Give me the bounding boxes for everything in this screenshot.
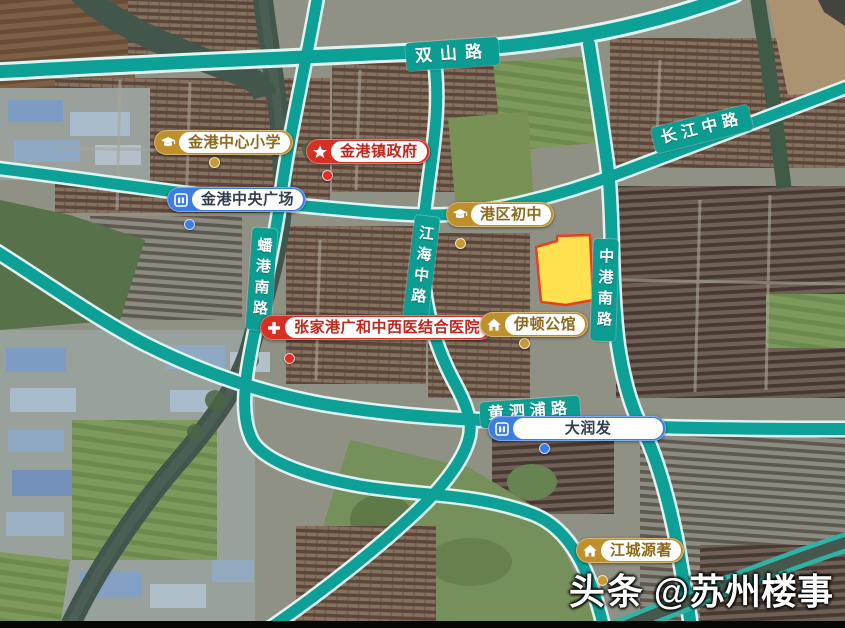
poi-pointer-dot <box>284 353 295 364</box>
poi-pointer-dot <box>539 443 550 454</box>
poi-label: 伊顿公馆 <box>505 314 585 335</box>
poi-pointer-dot <box>184 219 195 230</box>
poi-label: 张家港广和中西医结合医院 <box>285 317 489 338</box>
poi-rt-mart[interactable]: 大润发 <box>488 416 666 441</box>
poi-label: 金港中央广场 <box>192 189 303 210</box>
watermark-brand: 头条 <box>569 563 645 615</box>
poi-label: 金港中心小学 <box>179 132 290 153</box>
poi-zhangjiagang-guanghe-integrated-hospital[interactable]: 张家港广和中西医结合医院 <box>260 315 492 340</box>
poi-jingang-central-primary-school[interactable]: 金港中心小学 <box>154 130 293 155</box>
poi-jingang-central-plaza[interactable]: 金港中央广场 <box>167 187 306 212</box>
watermark: 头条 @苏州楼事 <box>569 563 833 615</box>
graduation-cap-icon <box>156 131 179 154</box>
poi-jingang-town-government[interactable]: 金港镇政府 <box>306 139 430 164</box>
road-label-zhonggang-south: 中港南路 <box>590 239 619 342</box>
poi-pointer-dot <box>209 157 220 168</box>
poi-gangqu-junior-high-school[interactable]: 港区初中 <box>446 202 554 227</box>
graduation-cap-icon <box>448 203 471 226</box>
poi-pointer-dot <box>322 170 333 181</box>
building-icon <box>490 417 513 440</box>
building-icon <box>169 188 192 211</box>
poi-jiangcheng-yuanzhu[interactable]: 江城源著 <box>576 538 684 563</box>
bottom-letterbox-bar <box>0 621 845 628</box>
house-icon <box>482 313 505 336</box>
cross-icon <box>262 316 285 339</box>
watermark-handle: @苏州楼事 <box>654 563 833 615</box>
poi-label: 大润发 <box>513 418 663 439</box>
poi-pointer-dot <box>455 238 466 249</box>
highlighted-parcel[interactable] <box>536 235 593 305</box>
poi-label: 江城源著 <box>601 540 681 561</box>
poi-label: 港区初中 <box>471 204 551 225</box>
satellite-map: 双山路 长江中路 蟠港南路 江海中路 中港南路 黄泗浦路 金港中心小学 金港镇政… <box>0 0 845 628</box>
house-icon <box>578 539 601 562</box>
poi-pointer-dot <box>519 338 530 349</box>
poi-label: 金港镇政府 <box>331 141 427 162</box>
poi-yidun-mansion[interactable]: 伊顿公馆 <box>480 312 588 337</box>
star-icon <box>308 140 331 163</box>
